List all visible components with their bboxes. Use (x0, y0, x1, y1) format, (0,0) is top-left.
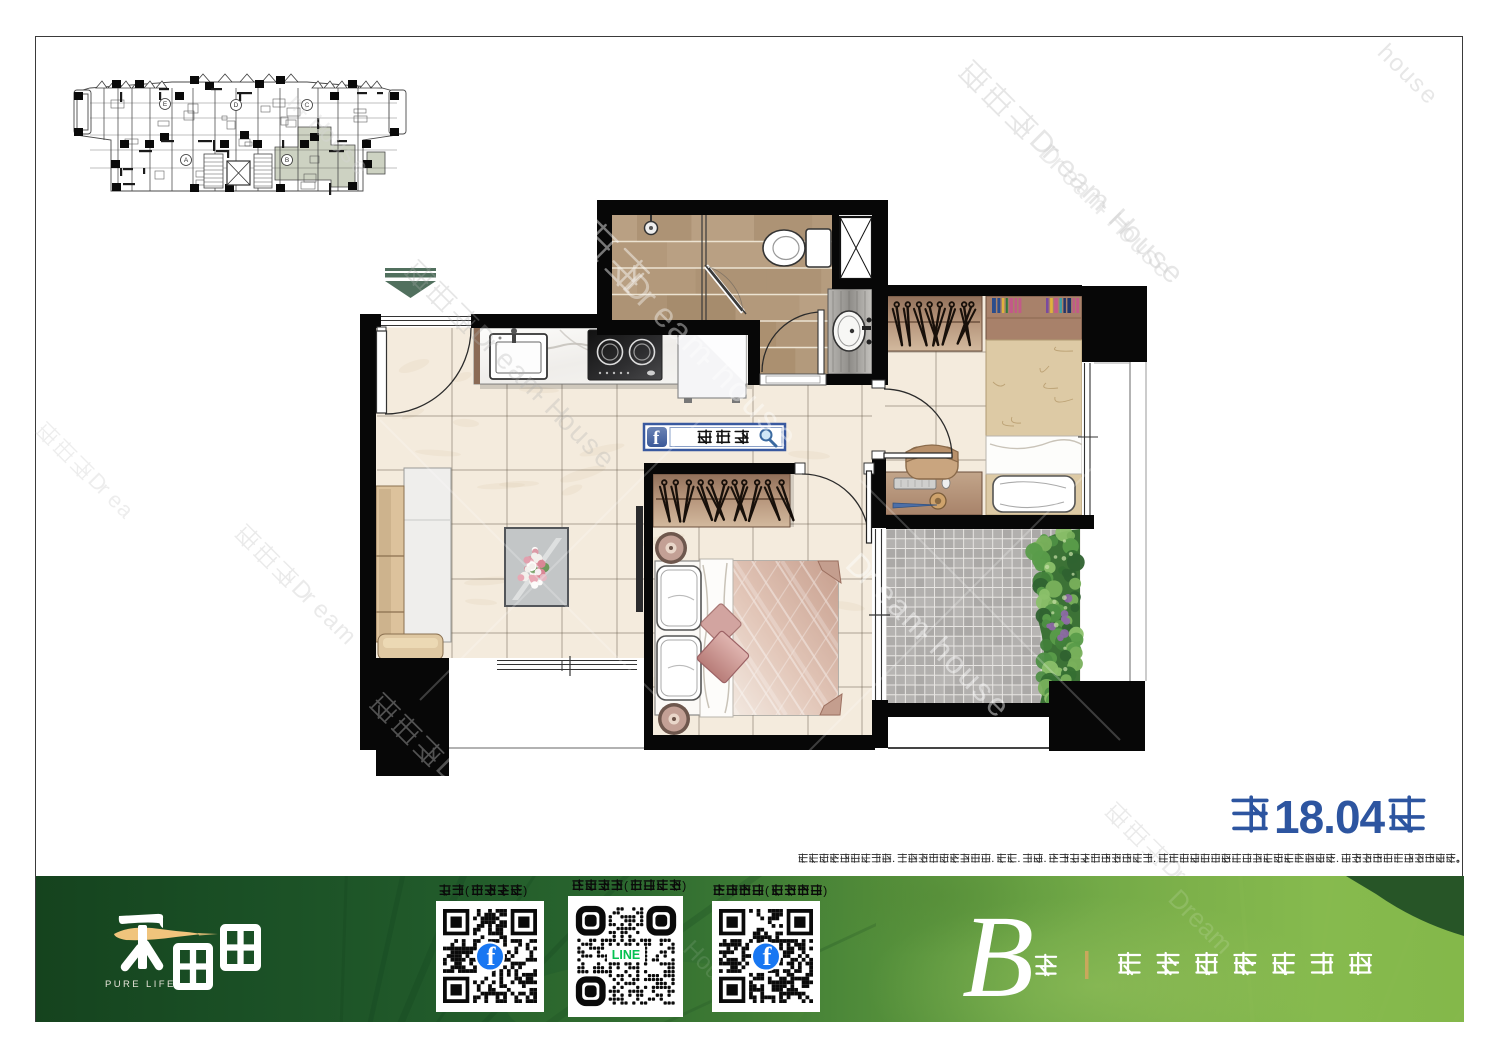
svg-text:(: ( (624, 878, 628, 892)
svg-text:A: A (184, 157, 189, 164)
svg-text:f: f (763, 941, 773, 971)
svg-text:E: E (163, 101, 168, 108)
svg-text:LINE: LINE (612, 948, 640, 962)
svg-text:f: f (487, 941, 497, 971)
svg-text:): ) (523, 883, 527, 897)
svg-text:): ) (682, 878, 686, 892)
svg-text:(: ( (765, 883, 769, 897)
svg-text:(: ( (465, 883, 469, 897)
svg-text:f: f (653, 428, 660, 449)
svg-text:D: D (234, 102, 239, 109)
svg-text:18.04: 18.04 (1274, 791, 1386, 841)
svg-text:B: B (285, 157, 289, 164)
svg-text:): ) (823, 883, 827, 897)
svg-text:B: B (962, 909, 1034, 1022)
